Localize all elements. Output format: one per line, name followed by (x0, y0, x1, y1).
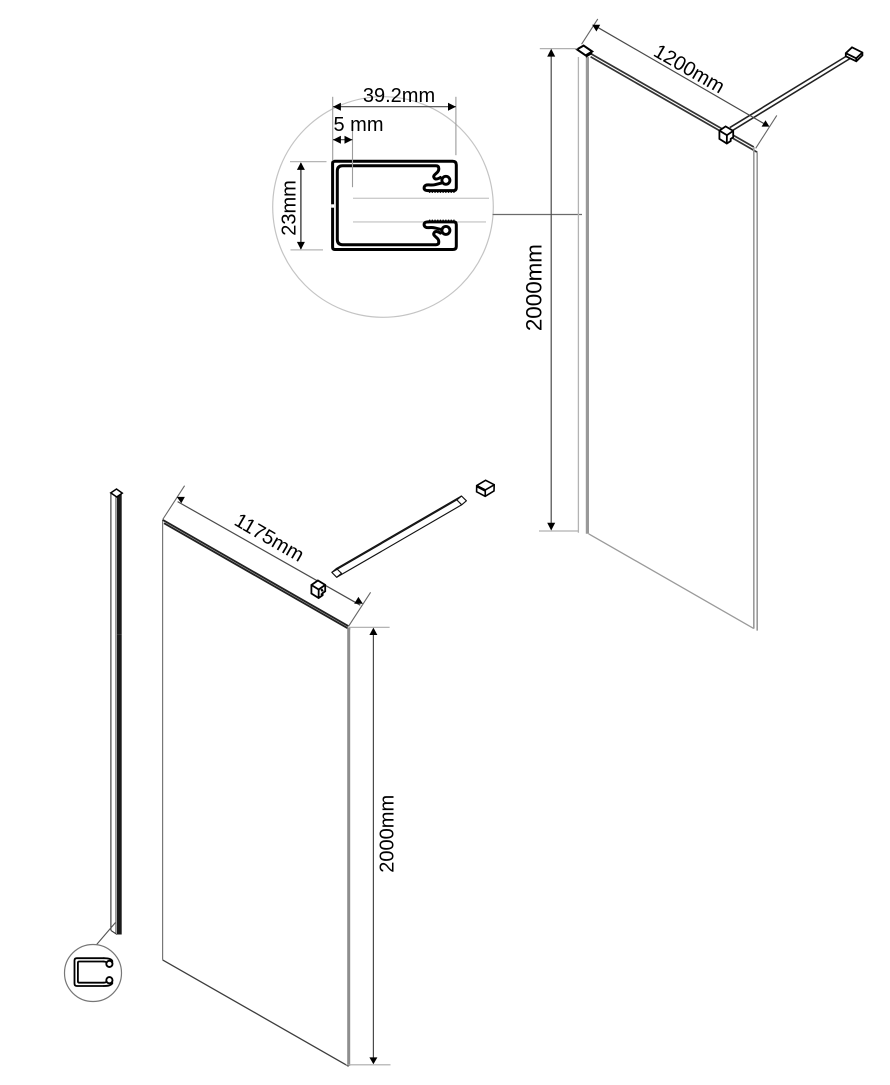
svg-text:39.2mm: 39.2mm (363, 85, 435, 107)
svg-text:2000mm: 2000mm (377, 795, 399, 873)
svg-text:5 mm: 5 mm (334, 114, 384, 136)
svg-text:23mm: 23mm (279, 180, 301, 236)
svg-text:2000mm: 2000mm (521, 244, 546, 331)
